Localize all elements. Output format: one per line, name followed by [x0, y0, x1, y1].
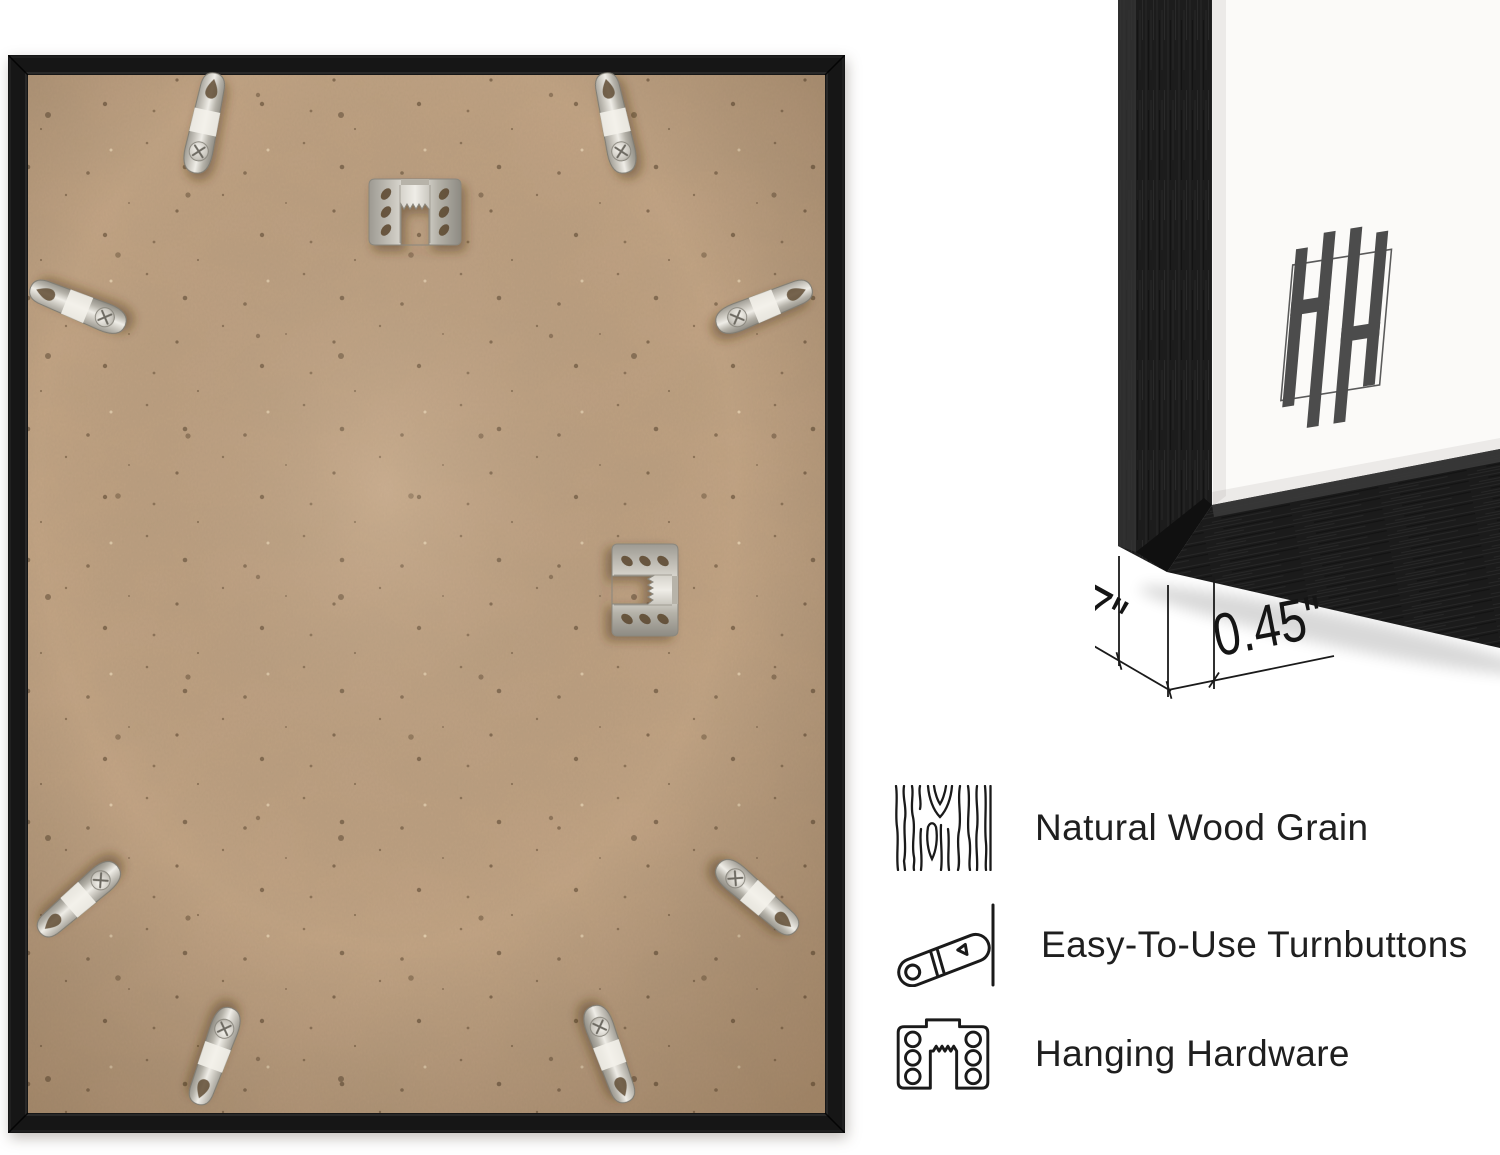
- feature-row-hanging-hardware: Hanging Hardware: [893, 1016, 1350, 1092]
- feature-label: Hanging Hardware: [1035, 1033, 1350, 1075]
- turnbutton-icon: [893, 903, 999, 987]
- hanging-hardware-icon: [893, 1016, 993, 1092]
- frame-corner-photo: 0.7" 0.45": [1095, 0, 1500, 720]
- feature-label: Easy-To-Use Turnbuttons: [1041, 924, 1468, 966]
- feature-row-wood-grain: Natural Wood Grain: [893, 785, 1369, 871]
- frame-back-photo: [8, 55, 845, 1133]
- wood-grain-icon: [893, 785, 993, 871]
- feature-row-turnbuttons: Easy-To-Use Turnbuttons: [893, 903, 1468, 987]
- feature-label: Natural Wood Grain: [1035, 807, 1369, 849]
- frame-left-rail: [1118, 0, 1212, 572]
- mdf-backing-board: [28, 75, 825, 1113]
